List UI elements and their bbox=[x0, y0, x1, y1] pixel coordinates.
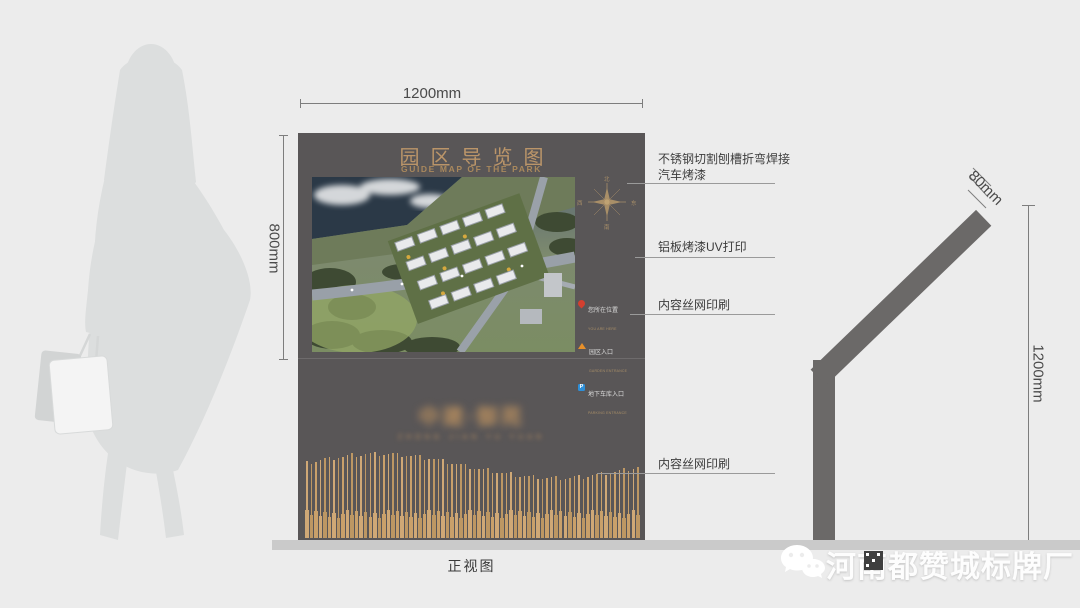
board-section-divider bbox=[298, 358, 645, 359]
width-dimension-line bbox=[300, 103, 643, 104]
entrance-triangle-icon bbox=[578, 343, 586, 349]
manufacturer-watermark: 河南都赞城标牌厂 bbox=[780, 542, 1074, 586]
callout-leader-line bbox=[630, 314, 775, 315]
board-subtitle: GUIDE MAP OF THE PARK bbox=[298, 164, 645, 174]
compass-west-label: 西 bbox=[577, 199, 583, 207]
location-pin-icon bbox=[577, 299, 587, 309]
qr-chip bbox=[864, 551, 883, 570]
callout-text: 内容丝网印刷 bbox=[658, 297, 730, 313]
blurred-logo-subtext: ZHONG JIAN YU YUAN bbox=[298, 434, 645, 441]
callout-stainless-steel: 不锈钢切割刨槽折弯焊接 汽车烤漆 bbox=[658, 151, 790, 183]
front-view-caption: 正视图 bbox=[298, 556, 645, 576]
callout-silkscreen-2: 内容丝网印刷 bbox=[658, 456, 730, 472]
legend-label: 您所在位置 bbox=[588, 308, 618, 314]
legend-sublabel: GARDEN ENTRANCE bbox=[589, 369, 627, 373]
woman-silhouette bbox=[20, 40, 270, 552]
callout-text: 不锈钢切割刨槽折弯焊接 bbox=[658, 151, 790, 167]
callout-text: 汽车烤漆 bbox=[658, 167, 790, 183]
height-dimension-line bbox=[283, 135, 284, 360]
wechat-icon bbox=[780, 543, 826, 585]
callout-leader-line bbox=[635, 257, 775, 258]
compass-east-label: 东 bbox=[631, 199, 637, 207]
legend-item-garden-entrance: 园区入口 GARDEN ENTRANCE bbox=[578, 341, 642, 377]
legend-label: 地下车库入口 bbox=[588, 392, 624, 398]
callout-leader-line bbox=[627, 183, 775, 184]
parking-icon: P bbox=[578, 384, 585, 391]
blurred-logo: 中建·御苑 ZHONG JIAN YU YUAN bbox=[298, 401, 645, 441]
side-height-dimension-label: 1200mm bbox=[1030, 329, 1047, 419]
callout-silkscreen-1: 内容丝网印刷 bbox=[658, 297, 730, 313]
compass-north-label: 北 bbox=[604, 175, 610, 183]
design-sheet: 园区导览图 GUIDE MAP OF THE PARK bbox=[0, 0, 1080, 608]
blurred-logo-text: 中建·御苑 bbox=[298, 401, 645, 431]
width-dimension-label: 1200mm bbox=[403, 85, 461, 102]
legend-label: 园区入口 bbox=[589, 350, 613, 356]
dimension-tick bbox=[279, 135, 288, 136]
wave-bar-pattern bbox=[306, 448, 640, 538]
height-dimension-label: 800mm bbox=[266, 204, 283, 294]
legend-item-you-are-here: 您所在位置 YOU ARE HERE bbox=[578, 299, 642, 335]
compass-icon: 北 南 西 东 bbox=[584, 179, 630, 225]
dimension-tick bbox=[1022, 205, 1035, 206]
callout-text: 铝板烤漆UV打印 bbox=[658, 239, 747, 255]
callout-aluminium-uv: 铝板烤漆UV打印 bbox=[658, 239, 747, 255]
legend-sublabel: YOU ARE HERE bbox=[588, 327, 617, 331]
callout-leader-line bbox=[597, 473, 775, 474]
park-aerial-map-image bbox=[312, 177, 575, 352]
sign-board-front-view: 园区导览图 GUIDE MAP OF THE PARK bbox=[298, 133, 645, 540]
dimension-tick bbox=[279, 359, 288, 360]
callout-text: 内容丝网印刷 bbox=[658, 456, 730, 472]
compass-south-label: 南 bbox=[604, 223, 610, 231]
